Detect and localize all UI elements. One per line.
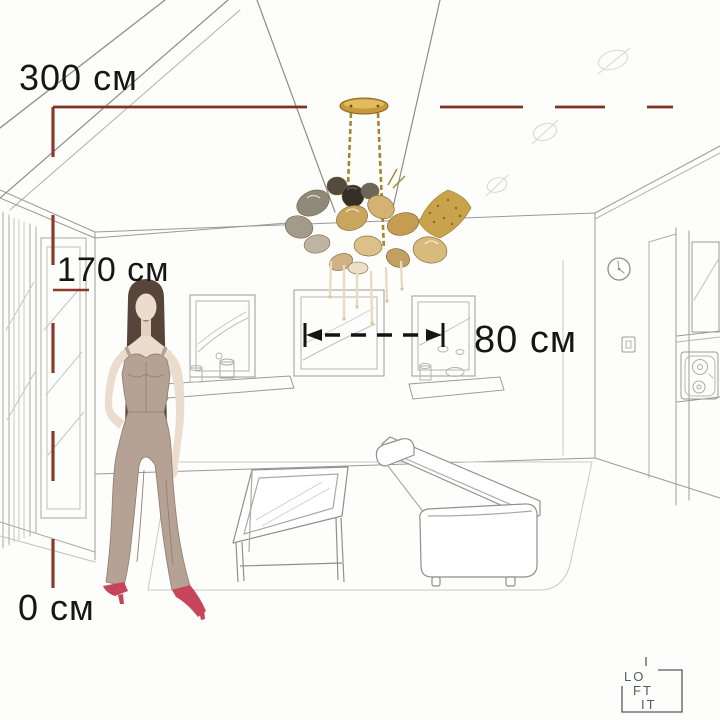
person-figure [103, 279, 206, 620]
doorway-outline [649, 234, 676, 478]
floor [95, 458, 720, 590]
fixture-width-label: 80 см [474, 321, 577, 359]
floor-level-label: 0 см [18, 590, 95, 626]
wall-clock-icon [608, 258, 630, 280]
light-switch [622, 337, 635, 352]
person-height-label: 170 см [57, 253, 170, 287]
brand-logo: LO FT IT [622, 657, 682, 712]
sofa [376, 437, 540, 586]
speaker-cabinet [676, 228, 720, 505]
height-scale-line [53, 107, 89, 588]
ceiling-spotlights [485, 47, 630, 196]
coffee-table [233, 467, 348, 582]
logo-line-1: LO [624, 669, 645, 684]
product-dimension-illustration: LO FT IT 300 см 170 см 0 см 80 см [0, 0, 720, 720]
person-face [136, 294, 157, 321]
shelf-right [409, 364, 504, 400]
logo-line-2: FT [633, 683, 653, 698]
scene-canvas: LO FT IT [0, 0, 720, 720]
chandelier [283, 98, 471, 325]
chandelier-canopy [340, 98, 388, 114]
right-wall [608, 228, 720, 505]
floating-shelves [164, 359, 504, 404]
person-left-shoe [103, 582, 128, 596]
ceiling-height-label: 300 см [19, 60, 138, 96]
logo-line-3: IT [641, 697, 657, 712]
